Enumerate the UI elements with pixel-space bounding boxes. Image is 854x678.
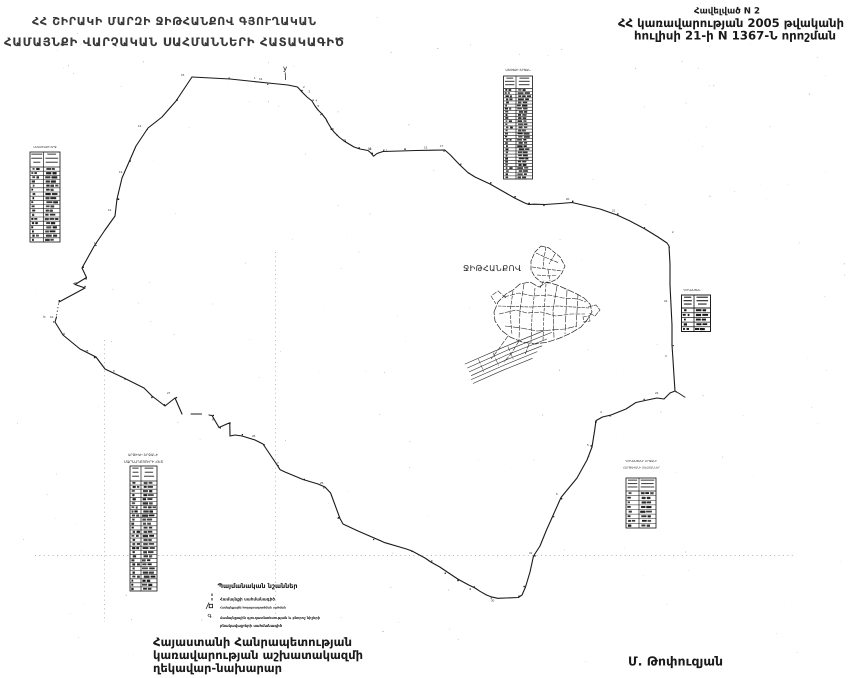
svg-text:21: 21 (612, 209, 616, 213)
svg-text:4: 4 (600, 410, 602, 414)
svg-text:11: 11 (94, 241, 97, 245)
svg-text:13: 13 (119, 170, 123, 174)
svg-text:1: 1 (254, 76, 256, 80)
svg-text:25: 25 (320, 481, 324, 485)
svg-text:5: 5 (318, 104, 320, 108)
svg-text:31: 31 (529, 551, 533, 555)
svg-text:29: 29 (74, 281, 78, 285)
svg-text:20: 20 (566, 197, 570, 201)
svg-text:28: 28 (85, 349, 89, 353)
svg-text:12: 12 (108, 208, 112, 212)
svg-text:30: 30 (491, 599, 495, 603)
svg-text:7: 7 (277, 461, 279, 465)
svg-text:9: 9 (113, 369, 115, 373)
svg-text:3: 3 (665, 354, 667, 358)
svg-text:3: 3 (309, 90, 311, 94)
svg-text:22: 22 (664, 299, 668, 303)
svg-text:8: 8 (332, 127, 334, 131)
svg-text:26: 26 (252, 434, 256, 438)
svg-text:27: 27 (167, 391, 171, 395)
svg-text:4: 4 (316, 99, 318, 103)
svg-text:10: 10 (343, 138, 347, 142)
svg-text:15: 15 (424, 146, 428, 150)
svg-text:19: 19 (368, 147, 372, 151)
svg-text:b: b (44, 315, 46, 319)
svg-text:12: 12 (384, 149, 388, 153)
svg-text:17: 17 (440, 144, 444, 148)
svg-text:2: 2 (672, 230, 674, 234)
svg-text:15: 15 (181, 73, 185, 77)
svg-text:5: 5 (587, 443, 589, 447)
svg-text:2: 2 (303, 85, 305, 89)
svg-text:10: 10 (50, 315, 54, 319)
svg-text:24: 24 (337, 516, 341, 520)
svg-text:6: 6 (556, 492, 558, 496)
svg-text:14: 14 (138, 124, 142, 128)
svg-text:16: 16 (259, 77, 263, 81)
svg-text:23: 23 (655, 391, 659, 395)
